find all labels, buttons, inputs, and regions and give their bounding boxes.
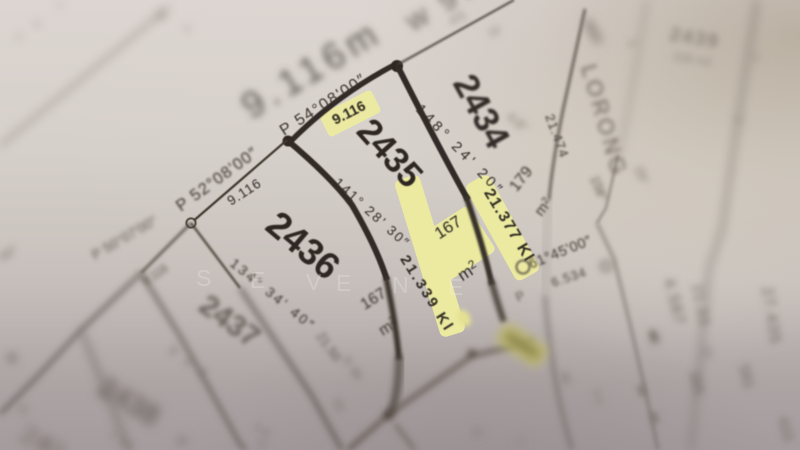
svg-text:N: N <box>392 272 409 298</box>
svg-text:E: E <box>336 270 351 296</box>
svg-text:E: E <box>448 274 463 300</box>
svg-text:S: S <box>196 265 211 291</box>
svg-text:E: E <box>250 267 265 293</box>
svg-text:V: V <box>306 269 322 295</box>
